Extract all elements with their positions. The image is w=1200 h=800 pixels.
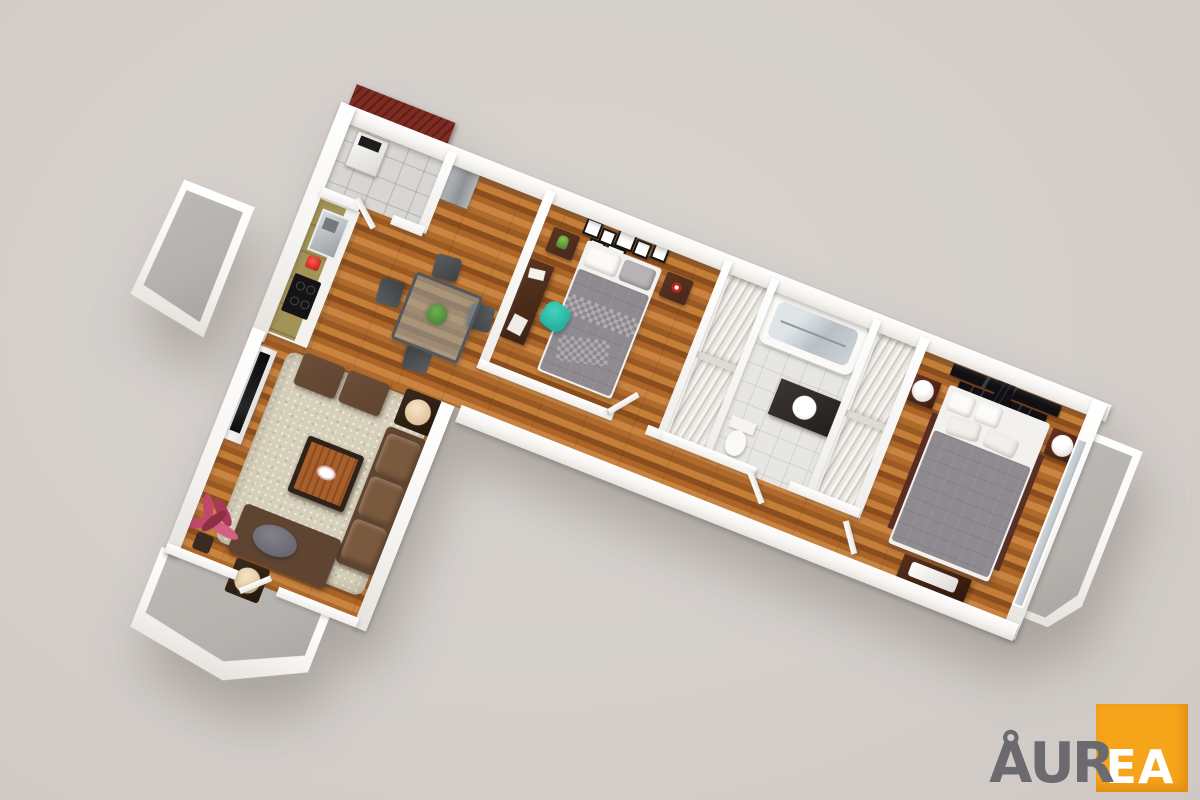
logo-text-aur: ÅUR [989, 736, 1112, 792]
burner [289, 295, 301, 307]
sink-bowl [789, 392, 820, 423]
burner [305, 284, 317, 296]
green-plant [424, 302, 450, 328]
pillow [946, 390, 978, 419]
burner [295, 280, 307, 292]
papers [528, 268, 546, 281]
balcony-left [125, 176, 254, 337]
plant-pot [191, 531, 214, 554]
floor-plan [137, 118, 1094, 800]
burner [299, 299, 311, 311]
papers [507, 313, 529, 336]
sink-basin [322, 217, 339, 233]
decor-plate [314, 463, 338, 483]
cactus-plant [555, 234, 570, 250]
balcony-left-floor [138, 188, 243, 322]
gray-pillow [248, 518, 302, 563]
aurea-logo: EA ÅUR [918, 704, 1188, 796]
coffee-table-top [293, 442, 358, 507]
washer-panel [358, 135, 382, 152]
red-clock [670, 281, 683, 294]
scene-background: EA ÅUR [0, 0, 1200, 800]
